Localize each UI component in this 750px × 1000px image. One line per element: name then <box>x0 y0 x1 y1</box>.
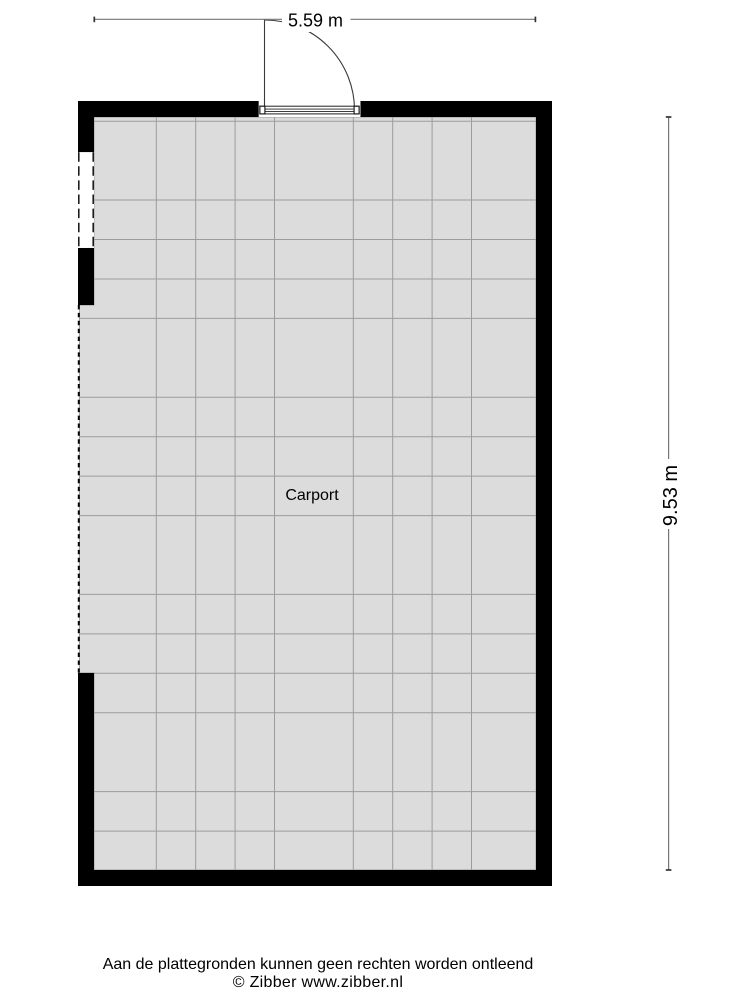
svg-text:9.53 m: 9.53 m <box>660 465 682 526</box>
svg-text:5.59 m: 5.59 m <box>288 10 343 30</box>
svg-text:Aan de plattegronden kunnen ge: Aan de plattegronden kunnen geen rechten… <box>103 956 534 973</box>
svg-text:© Zibber www.zibber.nl: © Zibber www.zibber.nl <box>233 974 403 991</box>
svg-text:Carport: Carport <box>285 487 339 504</box>
